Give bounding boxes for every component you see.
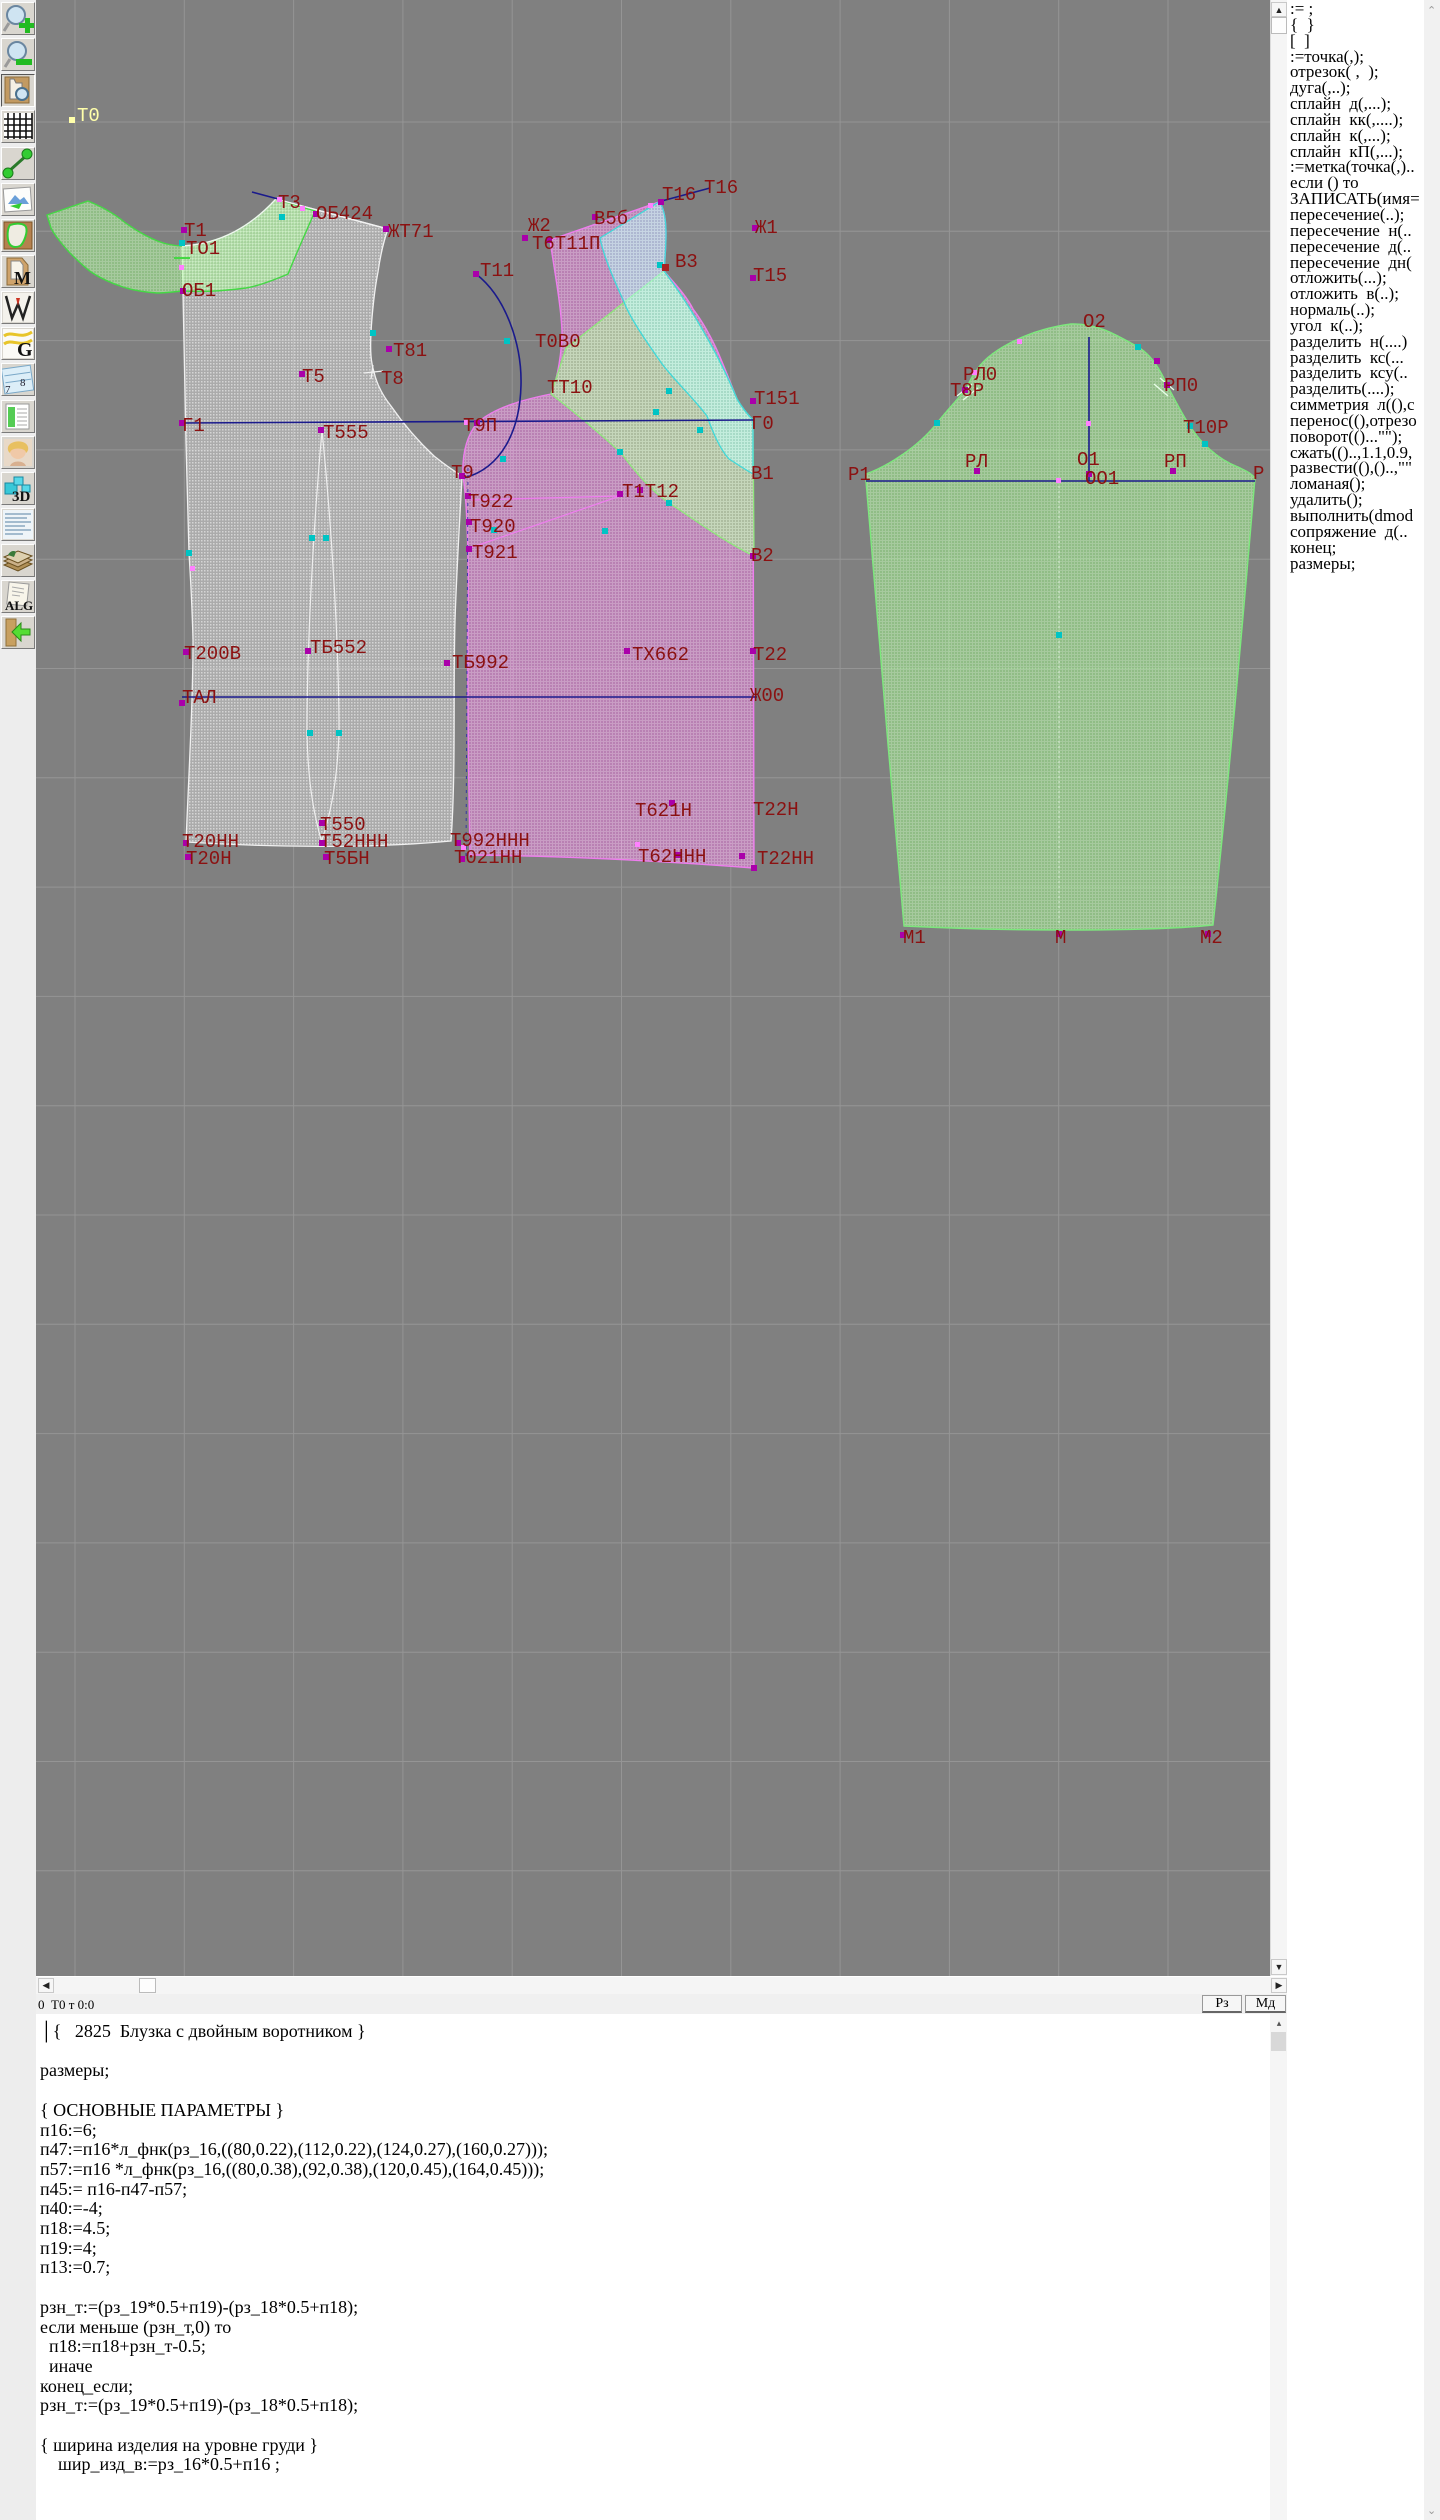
svg-text:Г1: Г1 bbox=[182, 415, 205, 437]
svg-text:Т9П: Т9П bbox=[463, 415, 497, 437]
svg-text:М1: М1 bbox=[903, 927, 926, 949]
svg-text:Т62ННН: Т62ННН bbox=[638, 846, 706, 868]
svg-text:Г0: Г0 bbox=[751, 413, 774, 435]
svg-text:Т621Н: Т621Н bbox=[635, 800, 692, 822]
svg-text:Т8Р: Т8Р bbox=[950, 380, 984, 402]
svg-text:ТХ662: ТХ662 bbox=[632, 644, 689, 666]
svg-text:Р: Р bbox=[1253, 463, 1264, 485]
svg-text:G: G bbox=[17, 339, 33, 359]
svg-text:Т021НН: Т021НН bbox=[454, 847, 522, 869]
svg-text:Т0В0: Т0В0 bbox=[535, 331, 581, 353]
svg-text:Т6Т11П: Т6Т11П bbox=[532, 233, 600, 255]
svg-text:Т22НН: Т22НН bbox=[757, 848, 814, 870]
svg-text:ОБ424: ОБ424 bbox=[316, 203, 373, 225]
svg-text:Т16: Т16 bbox=[662, 184, 696, 206]
svg-text:ALG: ALG bbox=[5, 598, 33, 612]
svg-text:ТО1: ТО1 bbox=[186, 238, 220, 260]
svg-text:Т16: Т16 bbox=[704, 177, 738, 199]
svg-text:В2: В2 bbox=[751, 545, 774, 567]
svg-text:Т1Т12: Т1Т12 bbox=[622, 481, 679, 503]
svg-text:ТБ552: ТБ552 bbox=[310, 637, 367, 659]
svg-text:ТБ992: ТБ992 bbox=[452, 652, 509, 674]
svg-text:Т10Р: Т10Р bbox=[1183, 417, 1229, 439]
svg-text:РП0: РП0 bbox=[1164, 375, 1198, 397]
svg-text:Т922: Т922 bbox=[468, 491, 514, 513]
svg-text:Т920: Т920 bbox=[470, 516, 516, 538]
svg-text:РП: РП bbox=[1164, 451, 1187, 473]
svg-text:Т8: Т8 bbox=[381, 368, 404, 390]
svg-text:В5б: В5б bbox=[594, 208, 628, 230]
svg-text:Т5: Т5 bbox=[302, 366, 325, 388]
svg-text:Т3: Т3 bbox=[278, 192, 301, 214]
svg-text:Т200В: Т200В bbox=[184, 643, 241, 665]
svg-text:ЖТ71: ЖТ71 bbox=[388, 221, 434, 243]
svg-text:Ж00: Ж00 bbox=[750, 685, 784, 707]
svg-text:ОО1: ОО1 bbox=[1085, 468, 1119, 490]
svg-text:7: 7 bbox=[5, 384, 11, 395]
svg-text:ОБ1: ОБ1 bbox=[182, 280, 216, 302]
svg-text:М: М bbox=[1055, 927, 1066, 949]
svg-text:Т22Н: Т22Н bbox=[753, 799, 799, 821]
svg-text:Т555: Т555 bbox=[323, 422, 369, 444]
svg-text:8: 8 bbox=[20, 377, 26, 389]
svg-text:Т15: Т15 bbox=[753, 265, 787, 287]
svg-text:В1: В1 bbox=[751, 463, 774, 485]
svg-text:ТТ10: ТТ10 bbox=[547, 377, 593, 399]
svg-text:Т22: Т22 bbox=[753, 644, 787, 666]
svg-text:Т9: Т9 bbox=[451, 462, 474, 484]
svg-text:ТАЛ: ТАЛ bbox=[182, 687, 216, 709]
svg-text:Т0: Т0 bbox=[77, 105, 100, 127]
svg-text:О2: О2 bbox=[1083, 311, 1106, 333]
svg-text:Т151: Т151 bbox=[754, 388, 800, 410]
svg-text:Т20Н: Т20Н bbox=[186, 848, 232, 870]
svg-text:Т921: Т921 bbox=[472, 542, 518, 564]
svg-text:Р1: Р1 bbox=[848, 464, 871, 486]
svg-text:Т5БН: Т5БН bbox=[324, 848, 370, 870]
svg-text:M: M bbox=[14, 268, 31, 287]
svg-text:Ж1: Ж1 bbox=[755, 217, 778, 239]
svg-text:3D: 3D bbox=[12, 489, 31, 504]
svg-text:Т11: Т11 bbox=[480, 260, 514, 282]
svg-text:РЛ: РЛ bbox=[965, 451, 988, 473]
svg-text:М2: М2 bbox=[1200, 927, 1223, 949]
svg-text:В3: В3 bbox=[675, 251, 698, 273]
svg-text:Т81: Т81 bbox=[393, 340, 427, 362]
